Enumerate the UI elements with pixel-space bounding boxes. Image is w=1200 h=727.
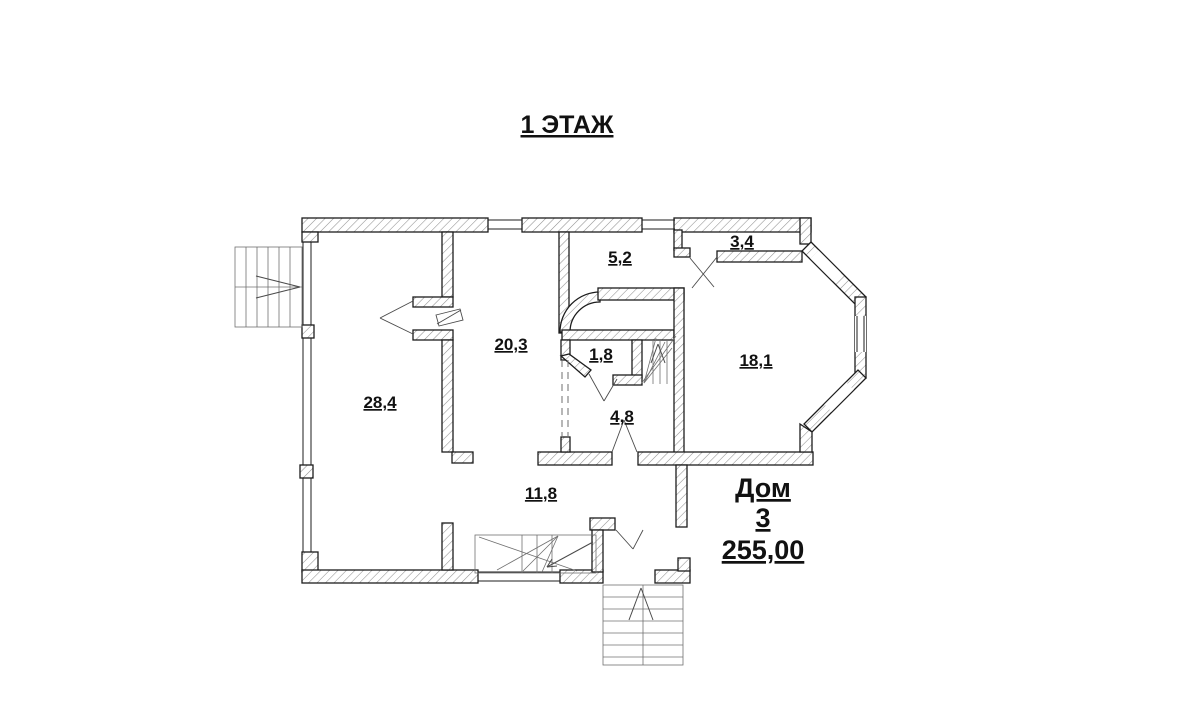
- wall: [632, 340, 642, 378]
- wall: [590, 518, 615, 530]
- bay-window-pane-lower: [824, 382, 854, 412]
- wall: [413, 330, 453, 340]
- wall: [678, 558, 690, 571]
- window-left-glazing: [303, 242, 311, 552]
- floor-plan-drawing: 1 ЭТАЖ 28,4 20,3 5,2 3,4 1,8 4,8 18,1 11…: [0, 0, 1200, 727]
- wall: [302, 218, 488, 232]
- wall: [598, 288, 684, 300]
- wall: [302, 232, 318, 242]
- room-label-4-8: 4,8: [610, 407, 634, 426]
- wall: [674, 230, 682, 250]
- wall: [676, 465, 687, 527]
- staircase-interior-lower: [475, 535, 596, 573]
- wall: [562, 330, 674, 340]
- wall: [302, 552, 318, 572]
- opening-dashed-line: [562, 360, 568, 437]
- bay-window-pane-middle: [855, 316, 866, 352]
- wall: [522, 218, 642, 232]
- wall: [613, 375, 642, 385]
- stair-direction-arrow: [629, 588, 641, 620]
- wall: [717, 251, 802, 262]
- room-label-5-2: 5,2: [608, 248, 632, 267]
- wall: [302, 570, 478, 583]
- wall: [674, 248, 690, 257]
- door-swing-room18: [690, 257, 717, 288]
- wall: [538, 452, 612, 465]
- staircase-left-entrance: [235, 247, 302, 327]
- window-top-1: [488, 220, 522, 229]
- wall: [655, 570, 690, 583]
- room-label-18-1: 18,1: [739, 351, 772, 370]
- plan-title: 1 ЭТАЖ: [521, 111, 614, 139]
- wall: [592, 530, 603, 572]
- room-label-11-8: 11,8: [525, 484, 557, 503]
- room-label-1-8: 1,8: [589, 345, 613, 364]
- wall: [561, 437, 570, 452]
- wall: [674, 288, 684, 453]
- house-name: Дом: [735, 473, 791, 503]
- wall: [452, 452, 473, 463]
- room-label-28-4: 28,4: [363, 393, 397, 412]
- room-label-20-3: 20,3: [494, 335, 527, 354]
- wall: [561, 354, 591, 377]
- stair-direction-arrow: [256, 276, 300, 287]
- door-swing-vestibule: [616, 530, 643, 549]
- house-number: 3: [755, 503, 770, 533]
- staircase-porch: [603, 585, 683, 665]
- wall: [800, 218, 811, 244]
- wall: [442, 232, 453, 297]
- pilaster: [300, 465, 313, 478]
- wall: [442, 523, 453, 570]
- bay-window-pane-upper: [810, 250, 841, 281]
- wall: [674, 218, 811, 232]
- room-label-3-4: 3,4: [730, 232, 754, 251]
- house-total-area: 255,00: [722, 535, 805, 565]
- wall: [442, 340, 453, 452]
- wall: [413, 297, 453, 307]
- house-info: Дом 3 255,00: [722, 473, 805, 565]
- pilaster: [302, 325, 314, 338]
- floor-plan-page: 1 ЭТАЖ 28,4 20,3 5,2 3,4 1,8 4,8 18,1 11…: [0, 0, 1200, 727]
- window-top-2: [642, 220, 675, 229]
- staircase-winder: [641, 336, 676, 384]
- wall: [638, 452, 813, 465]
